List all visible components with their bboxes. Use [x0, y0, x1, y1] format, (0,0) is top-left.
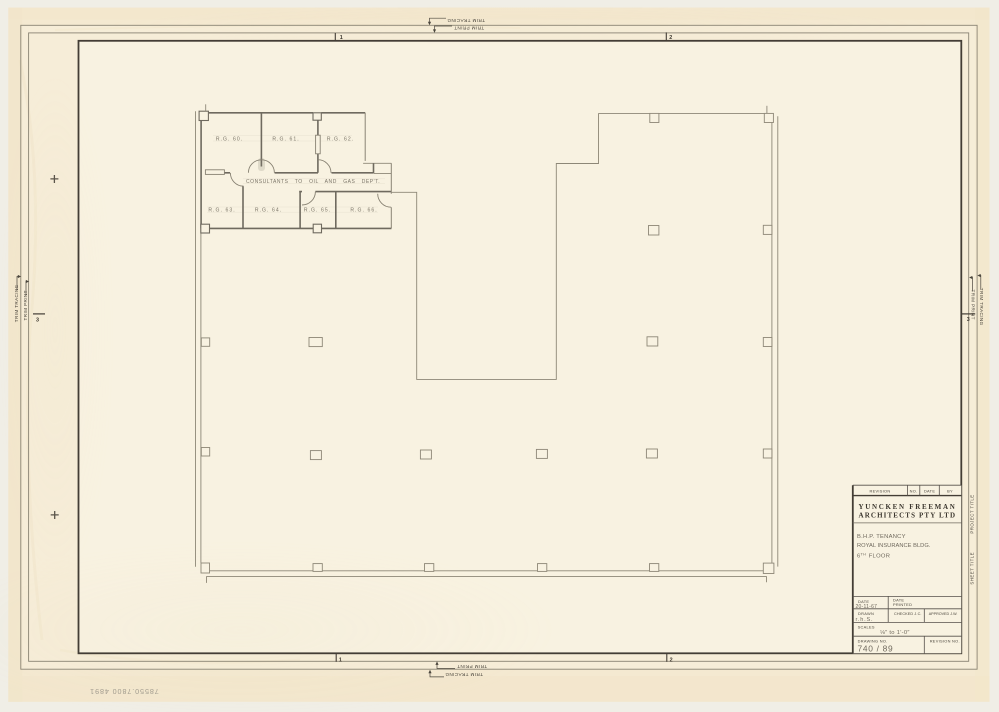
svg-text:ROYAL INSURANCE BLDG.: ROYAL INSURANCE BLDG.	[857, 543, 931, 549]
svg-text:TRIM TRACING: TRIM TRACING	[447, 18, 485, 23]
svg-text:R.G. 63.: R.G. 63.	[208, 208, 235, 214]
svg-text:CONSULTANTS TO OIL AND GAS: CONSULTANTS TO OIL AND GAS DEP'T.	[246, 179, 380, 185]
svg-text:TRIM PRINT: TRIM PRINT	[454, 26, 484, 31]
svg-text:ARCHITECTS PTY LTD: ARCHITECTS PTY LTD	[859, 512, 957, 520]
svg-text:740 / 89: 740 / 89	[858, 643, 894, 653]
svg-text:3: 3	[36, 318, 39, 324]
svg-text:REVISION NO.: REVISION NO.	[930, 638, 960, 643]
svg-text:DRAWN: DRAWN	[858, 611, 874, 616]
svg-text:R.G. 62.: R.G. 62.	[327, 136, 354, 142]
svg-text:SCALES: SCALES	[858, 624, 875, 629]
svg-text:DATE: DATE	[924, 489, 935, 494]
svg-text:2: 2	[670, 657, 673, 663]
svg-text:R.G. 60.: R.G. 60.	[216, 136, 243, 142]
svg-text:NO.: NO.	[910, 489, 918, 494]
svg-text:TRIM TRACING: TRIM TRACING	[445, 672, 483, 677]
svg-text:R.G. 61.: R.G. 61.	[272, 136, 299, 142]
svg-text:PROJECT TITLE: PROJECT TITLE	[970, 494, 975, 533]
svg-text:⅛″ to 1′-0″: ⅛″ to 1′-0″	[880, 630, 910, 636]
svg-text:1: 1	[339, 657, 342, 663]
svg-text:78550.7800 4891: 78550.7800 4891	[89, 687, 158, 696]
svg-text:3: 3	[967, 317, 970, 323]
svg-text:APPROVED J.W.: APPROVED J.W.	[929, 612, 958, 616]
svg-text:BY: BY	[947, 489, 953, 494]
svg-text:YUNCKEN FREEMAN: YUNCKEN FREEMAN	[859, 503, 957, 511]
svg-text:TRIM PRINT: TRIM PRINT	[971, 290, 976, 320]
svg-text:R.G. 64.: R.G. 64.	[255, 208, 282, 214]
svg-text:1: 1	[340, 35, 343, 41]
svg-text:R.G. 66.: R.G. 66.	[350, 208, 377, 214]
svg-text:SHEET TITLE: SHEET TITLE	[970, 552, 975, 585]
svg-text:CHECKED J.C.: CHECKED J.C.	[894, 612, 922, 616]
svg-text:TRIM PRINT: TRIM PRINT	[457, 664, 487, 669]
svg-text:REVISION: REVISION	[870, 489, 891, 494]
svg-text:TRIM TRACING: TRIM TRACING	[979, 288, 984, 326]
svg-text:PRINTED: PRINTED	[893, 602, 912, 607]
svg-text:B.H.P. TENANCY: B.H.P. TENANCY	[857, 534, 906, 540]
svg-text:2: 2	[669, 35, 672, 41]
svg-text:R.G. 65.: R.G. 65.	[304, 208, 331, 214]
